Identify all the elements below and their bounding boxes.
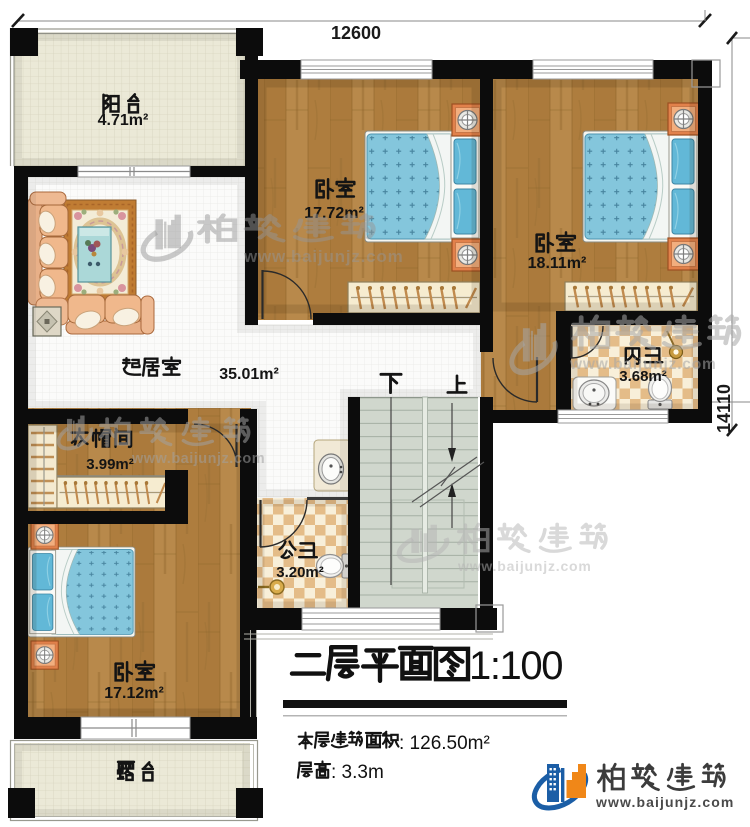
- svg-text:www.baijunjz.com: www.baijunjz.com: [131, 451, 265, 467]
- svg-text:14110: 14110: [714, 384, 734, 433]
- svg-text:www.baijunjz.com: www.baijunjz.com: [595, 794, 734, 810]
- svg-text:12600: 12600: [331, 23, 381, 43]
- svg-text:18.11m²: 18.11m²: [528, 255, 587, 272]
- svg-text:www.baijunjz.com: www.baijunjz.com: [569, 356, 717, 373]
- svg-text:3.99m²: 3.99m²: [86, 456, 134, 473]
- svg-text:3.20m²: 3.20m²: [276, 564, 324, 581]
- svg-text:1:100: 1:100: [469, 644, 562, 688]
- svg-text:: 126.50m²: : 126.50m²: [399, 733, 490, 754]
- svg-text:35.01m²: 35.01m²: [219, 366, 279, 383]
- svg-text:4.71m²: 4.71m²: [98, 112, 149, 129]
- svg-text:www.baijunjz.com: www.baijunjz.com: [243, 247, 404, 266]
- svg-text:17.12m²: 17.12m²: [104, 685, 164, 702]
- svg-text:: 3.3m: : 3.3m: [331, 762, 384, 783]
- svg-text:www.baijunjz.com: www.baijunjz.com: [457, 558, 592, 574]
